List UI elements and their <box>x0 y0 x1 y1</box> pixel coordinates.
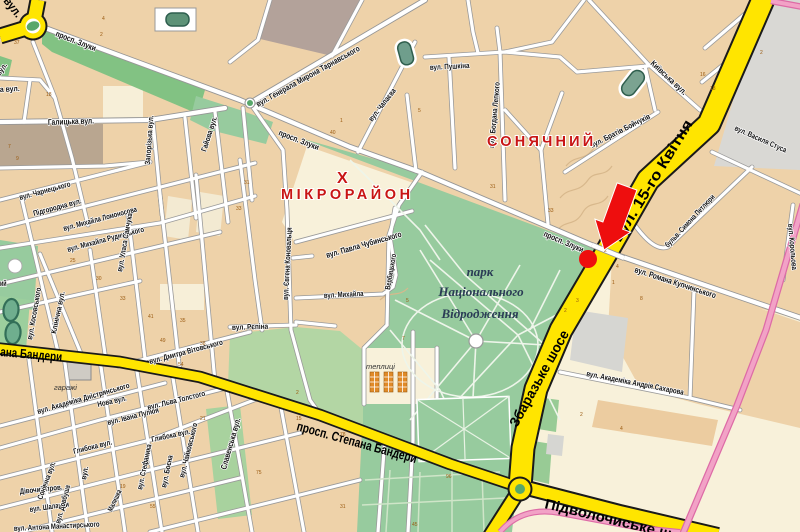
svg-text:4: 4 <box>620 426 623 432</box>
svg-text:33: 33 <box>120 296 126 302</box>
svg-text:78: 78 <box>340 432 346 438</box>
svg-text:2: 2 <box>564 308 567 314</box>
svg-text:33: 33 <box>548 208 554 214</box>
svg-text:парк: парк <box>467 264 494 279</box>
svg-text:Відродження: Відродження <box>440 306 518 321</box>
svg-text:1: 1 <box>340 118 343 124</box>
svg-text:35: 35 <box>180 318 186 324</box>
svg-text:Х: Х <box>337 170 348 187</box>
svg-text:30: 30 <box>96 276 102 282</box>
svg-text:19: 19 <box>120 484 126 490</box>
svg-text:45: 45 <box>412 522 418 528</box>
svg-text:2: 2 <box>580 412 583 418</box>
svg-text:8: 8 <box>640 296 643 302</box>
svg-text:38: 38 <box>200 341 206 347</box>
svg-text:а вул.: а вул. <box>0 84 20 94</box>
svg-text:31: 31 <box>244 180 250 186</box>
svg-text:16: 16 <box>700 72 706 78</box>
svg-text:2: 2 <box>296 390 299 396</box>
svg-text:7: 7 <box>402 336 405 342</box>
svg-text:теплиці: теплиці <box>366 362 395 371</box>
svg-text:5: 5 <box>406 298 409 304</box>
svg-text:СОНЯЧНИЙ: СОНЯЧНИЙ <box>487 132 596 150</box>
svg-text:41: 41 <box>148 314 154 320</box>
svg-text:25: 25 <box>70 258 76 264</box>
svg-text:4: 4 <box>616 264 619 270</box>
svg-text:31: 31 <box>340 504 346 510</box>
svg-text:37: 37 <box>14 40 20 46</box>
svg-text:49: 49 <box>160 338 166 344</box>
svg-text:15: 15 <box>296 416 302 422</box>
svg-text:2: 2 <box>100 32 103 38</box>
svg-text:7: 7 <box>8 144 11 150</box>
svg-text:9: 9 <box>16 156 19 162</box>
svg-text:54: 54 <box>178 362 184 368</box>
svg-text:гаражі: гаражі <box>54 383 77 392</box>
svg-text:96: 96 <box>446 474 452 480</box>
svg-text:вул. Рєпіна: вул. Рєпіна <box>232 322 269 332</box>
svg-text:МІКРОРАЙОН: МІКРОРАЙОН <box>281 185 414 203</box>
svg-text:33: 33 <box>236 206 242 212</box>
svg-text:4: 4 <box>102 16 105 22</box>
svg-text:Галицька вул.: Галицька вул. <box>48 115 94 127</box>
svg-text:18: 18 <box>46 92 52 98</box>
svg-text:Національного: Національного <box>437 284 524 299</box>
svg-text:5: 5 <box>418 108 421 114</box>
svg-text:18: 18 <box>710 86 716 92</box>
svg-text:55: 55 <box>150 504 156 510</box>
svg-text:2: 2 <box>760 50 763 56</box>
svg-text:1: 1 <box>612 280 615 286</box>
svg-text:ий: ий <box>0 279 7 288</box>
svg-text:31: 31 <box>490 184 496 190</box>
svg-text:21: 21 <box>200 416 206 422</box>
svg-text:3: 3 <box>576 298 579 304</box>
svg-text:40: 40 <box>330 130 336 136</box>
svg-text:75: 75 <box>256 470 262 476</box>
